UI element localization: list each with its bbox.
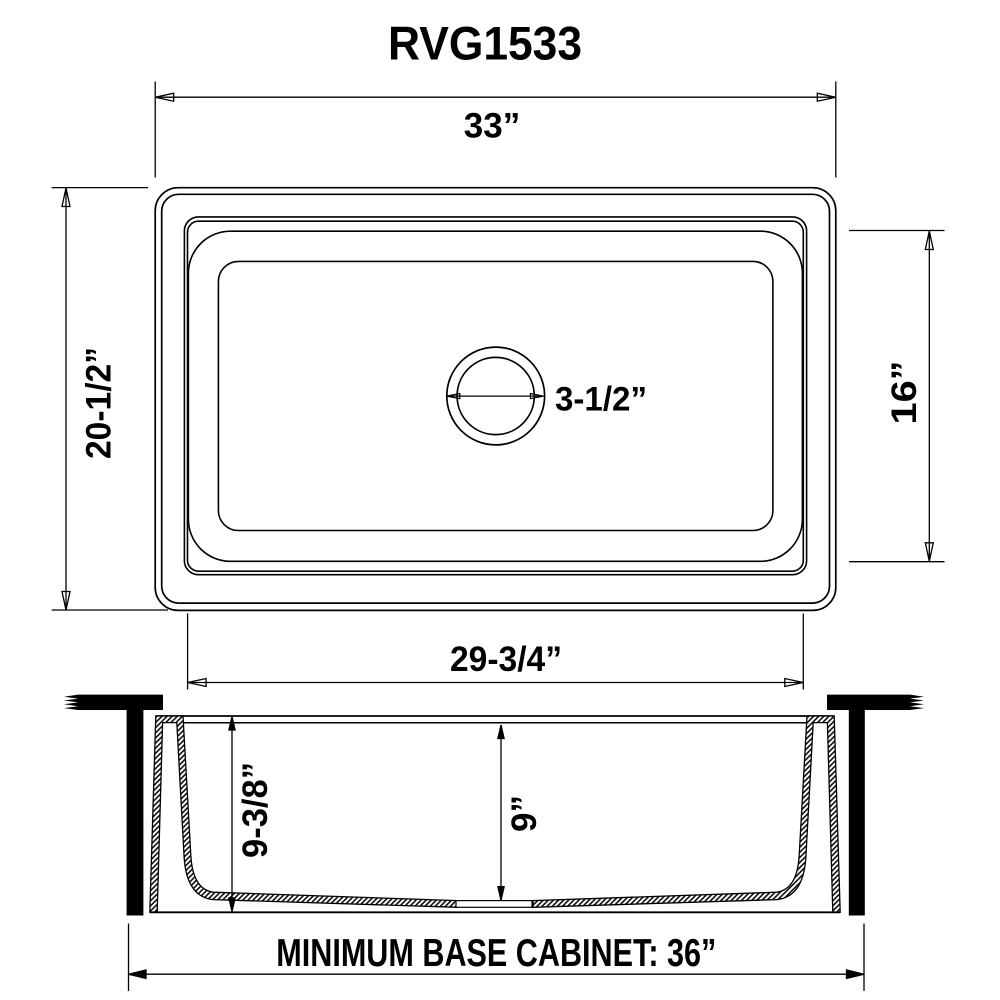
svg-text:RVG1533: RVG1533 <box>388 17 582 70</box>
svg-text:20-1/2”: 20-1/2” <box>80 347 119 459</box>
svg-text:33”: 33” <box>464 107 520 146</box>
svg-text:9-3/8”: 9-3/8” <box>236 762 275 858</box>
svg-text:3-1/2”: 3-1/2” <box>555 380 647 418</box>
svg-text:MINIMUM BASE CABINET: 36”: MINIMUM BASE CABINET: 36” <box>276 932 716 975</box>
svg-text:29-3/4”: 29-3/4” <box>450 640 562 679</box>
svg-text:9”: 9” <box>505 795 544 832</box>
svg-text:16”: 16” <box>885 361 924 425</box>
